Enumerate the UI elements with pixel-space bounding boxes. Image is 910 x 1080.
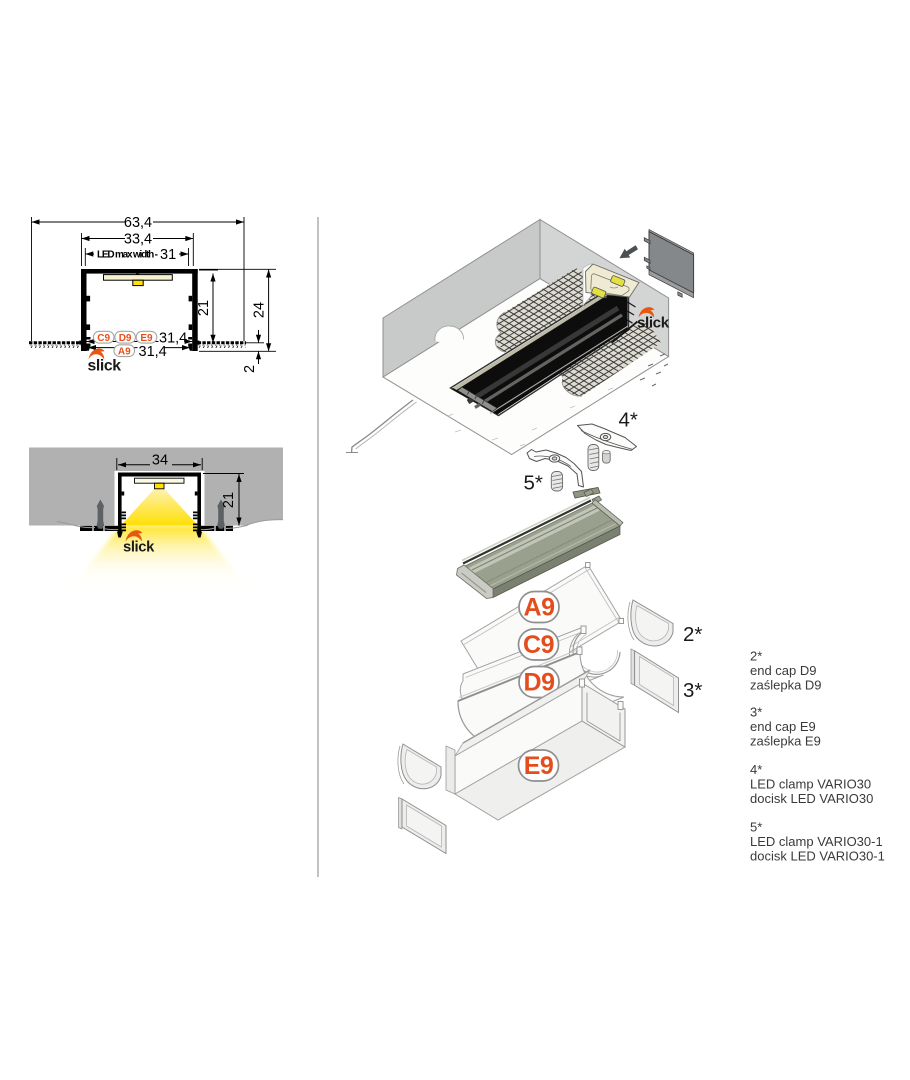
svg-text:31,4: 31,4	[139, 344, 167, 360]
svg-text:3*: 3*	[750, 705, 762, 720]
svg-text:4*: 4*	[619, 409, 638, 432]
svg-text:3*: 3*	[683, 679, 702, 702]
svg-text:A9: A9	[524, 594, 555, 622]
svg-text:A9: A9	[118, 346, 131, 357]
svg-text:LED clamp VARIO30: LED clamp VARIO30	[750, 777, 871, 792]
svg-text:end cap E9: end cap E9	[750, 719, 816, 734]
svg-text:E9: E9	[140, 333, 153, 344]
svg-text:slick: slick	[88, 358, 122, 375]
svg-text:2*: 2*	[750, 649, 762, 664]
svg-text:2*: 2*	[683, 623, 702, 646]
svg-text:31: 31	[160, 247, 176, 263]
svg-text:zaślepka D9: zaślepka D9	[750, 678, 822, 693]
svg-text:LED max width -: LED max width -	[97, 250, 158, 261]
svg-text:33,4: 33,4	[124, 232, 152, 248]
svg-text:end cap D9: end cap D9	[750, 663, 817, 678]
svg-text:LED clamp VARIO30-1: LED clamp VARIO30-1	[750, 834, 883, 849]
svg-text:5*: 5*	[750, 820, 762, 835]
svg-text:2: 2	[242, 365, 258, 373]
svg-text:4*: 4*	[750, 762, 762, 777]
svg-text:E9: E9	[524, 752, 554, 780]
svg-text:24: 24	[252, 302, 268, 318]
svg-text:D9: D9	[119, 333, 132, 344]
svg-text:slick: slick	[123, 540, 155, 556]
svg-text:slick: slick	[637, 315, 670, 332]
svg-text:zaślepka E9: zaślepka E9	[750, 734, 821, 749]
svg-text:docisk LED VARIO30-1: docisk LED VARIO30-1	[750, 849, 885, 864]
svg-text:63,4: 63,4	[124, 215, 152, 231]
svg-text:34: 34	[152, 453, 168, 469]
svg-text:C9: C9	[97, 333, 110, 344]
svg-text:5*: 5*	[524, 472, 543, 495]
svg-text:21: 21	[221, 492, 237, 508]
svg-text:C9: C9	[523, 631, 554, 659]
svg-text:docisk LED VARIO30: docisk LED VARIO30	[750, 791, 873, 806]
svg-text:21: 21	[196, 300, 212, 316]
